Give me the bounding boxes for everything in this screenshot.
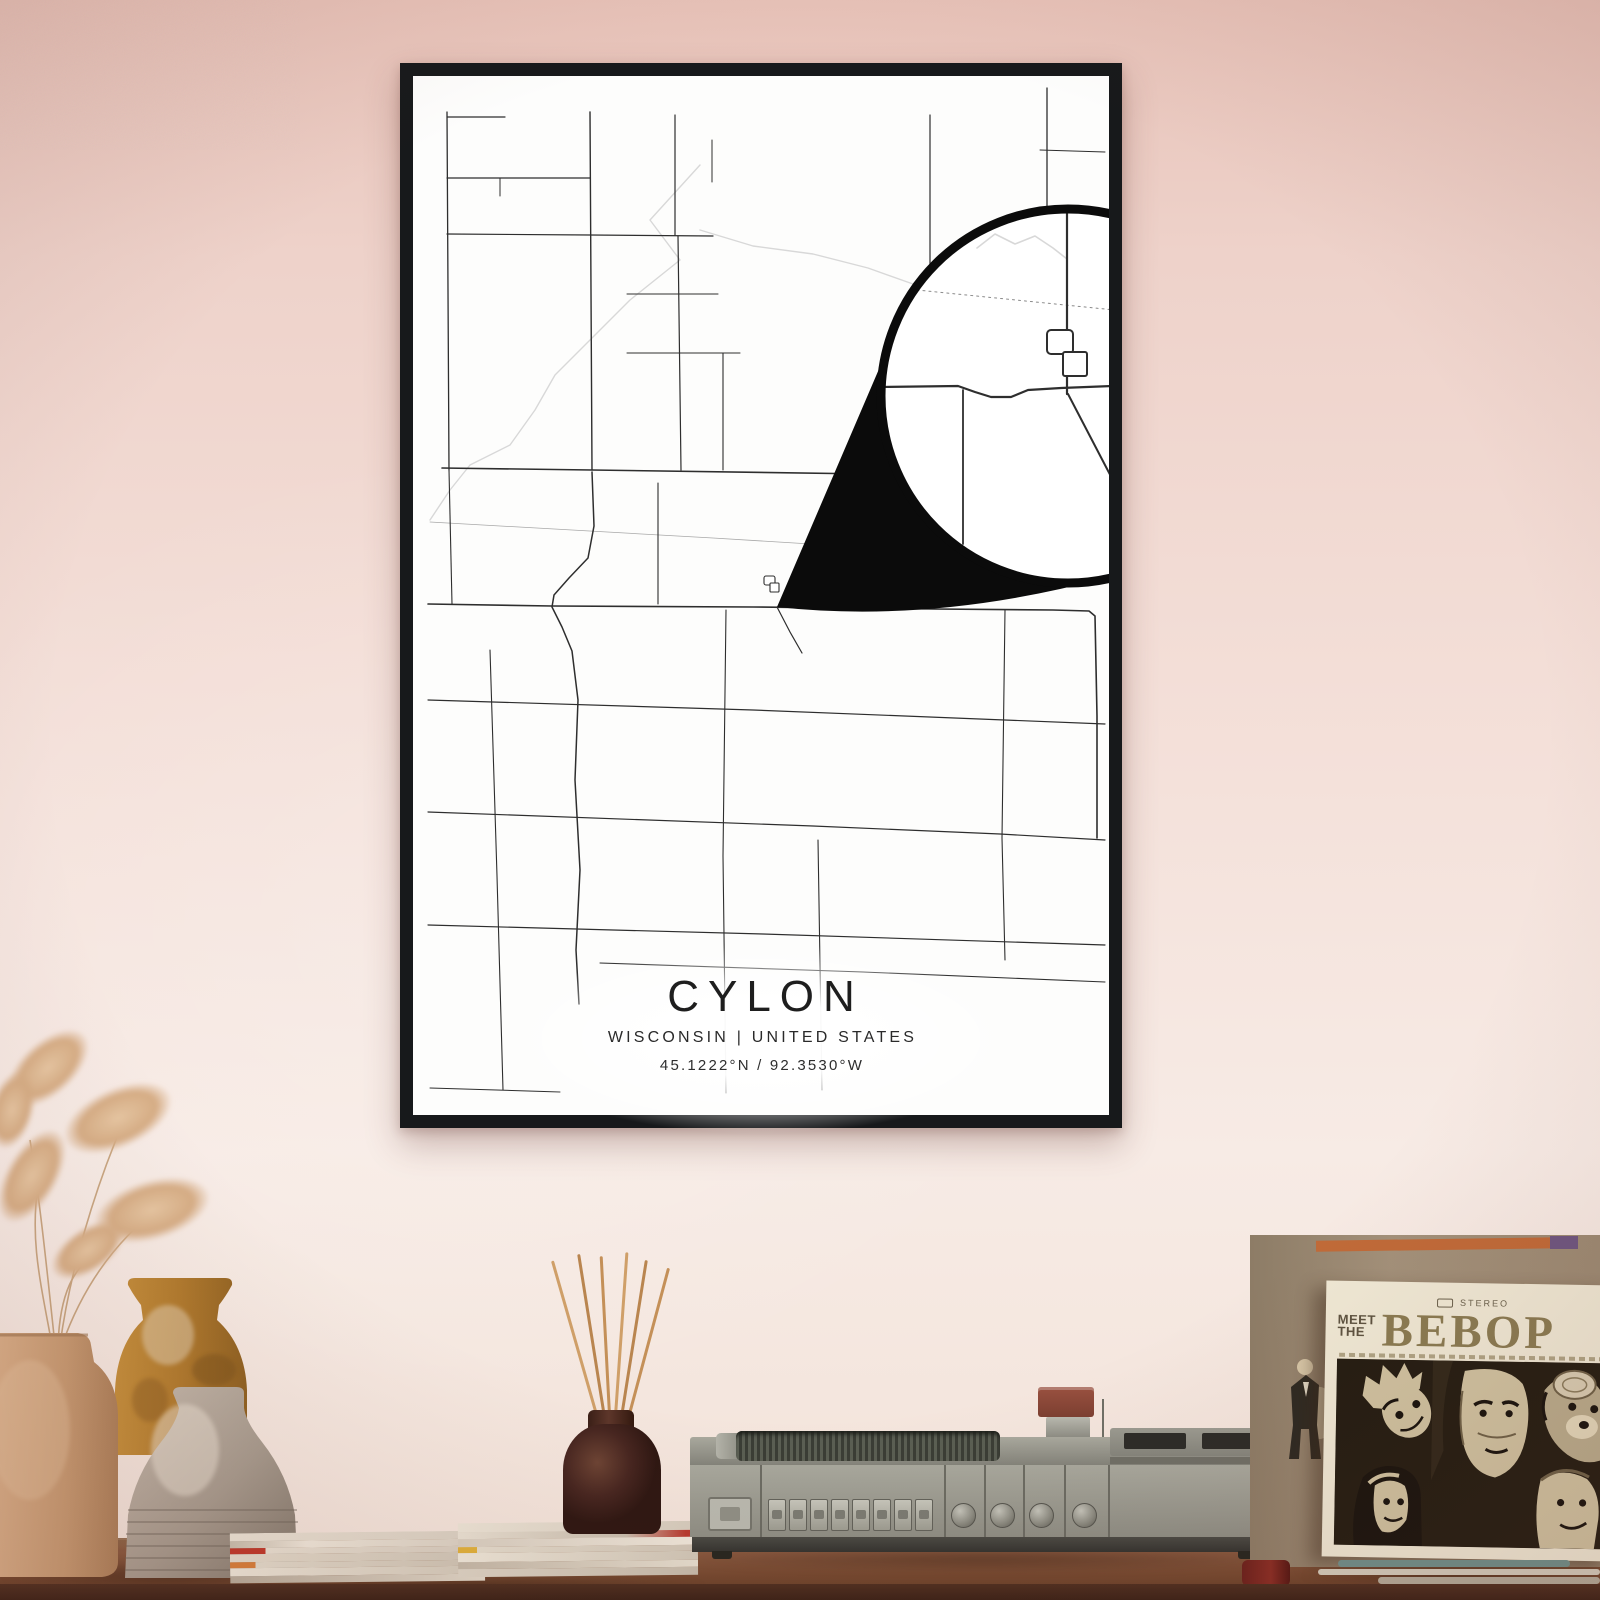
poster-title: CYLON [614,974,917,1020]
turntable-platter [736,1431,1000,1461]
tonearm-cartridge [1038,1387,1094,1417]
magazine-stack-left [230,1531,486,1590]
poster-subtitle: WISCONSIN | UNITED STATES [608,1029,917,1047]
balance-knob [1029,1503,1054,1528]
tan-vase [0,1333,118,1577]
vase-still-life [0,950,340,1600]
panel-seam [984,1465,986,1537]
room-scene: CYLON WISCONSIN | UNITED STATES 45.1222°… [0,0,1600,1600]
album-title-line2: THE [1337,1326,1375,1339]
preset-button [810,1499,828,1531]
album-sleeve: STEREO MEET THE BEBOP [1322,1280,1600,1561]
preset-button [831,1499,849,1531]
flat-record-teal [1338,1560,1570,1567]
cassette-slot [1124,1433,1186,1449]
pampas-grass [0,1014,218,1291]
lighter-object [1242,1560,1290,1586]
table-front-edge [0,1584,1600,1600]
preset-button [789,1499,807,1531]
panel-seam [1023,1465,1025,1537]
album-title-main: BEBOP [1381,1310,1556,1353]
player-foot [712,1551,732,1559]
antenna-rod [1102,1399,1104,1441]
record-player [690,1393,1282,1560]
preset-button [894,1499,912,1531]
preset-button [873,1499,891,1531]
volume-knob [951,1503,976,1528]
poster-coordinates: 45.1222°N / 92.3530°W [607,1057,917,1074]
map-poster-frame: CYLON WISCONSIN | UNITED STATES 45.1222°… [400,63,1122,1128]
power-button [708,1497,752,1531]
tuning-knob [990,1503,1015,1528]
player-base [692,1537,1280,1552]
panel-seam [944,1465,946,1537]
album-cover-art [1334,1359,1600,1550]
preset-button [768,1499,786,1531]
tone-knob [1072,1503,1097,1528]
diffuser-bottle [563,1424,661,1534]
preset-button [915,1499,933,1531]
preset-button [852,1499,870,1531]
flat-record-cream [1318,1569,1600,1575]
album-title: MEET THE BEBOP [1337,1310,1600,1355]
flat-record-gray [1378,1577,1600,1584]
panel-seam [1108,1465,1110,1537]
face-woman [1353,1465,1423,1546]
sleeve-behind-notch [1550,1236,1578,1249]
album-corner: STEREO MEET THE BEBOP [1250,1235,1600,1567]
panel-seam [1064,1465,1066,1537]
town-block [764,576,779,592]
panel-seam [760,1465,762,1537]
poster-title-block: CYLON WISCONSIN | UNITED STATES 45.1222°… [605,974,917,1074]
record-label-logo [1553,1370,1595,1399]
preset-button-row [768,1499,933,1531]
